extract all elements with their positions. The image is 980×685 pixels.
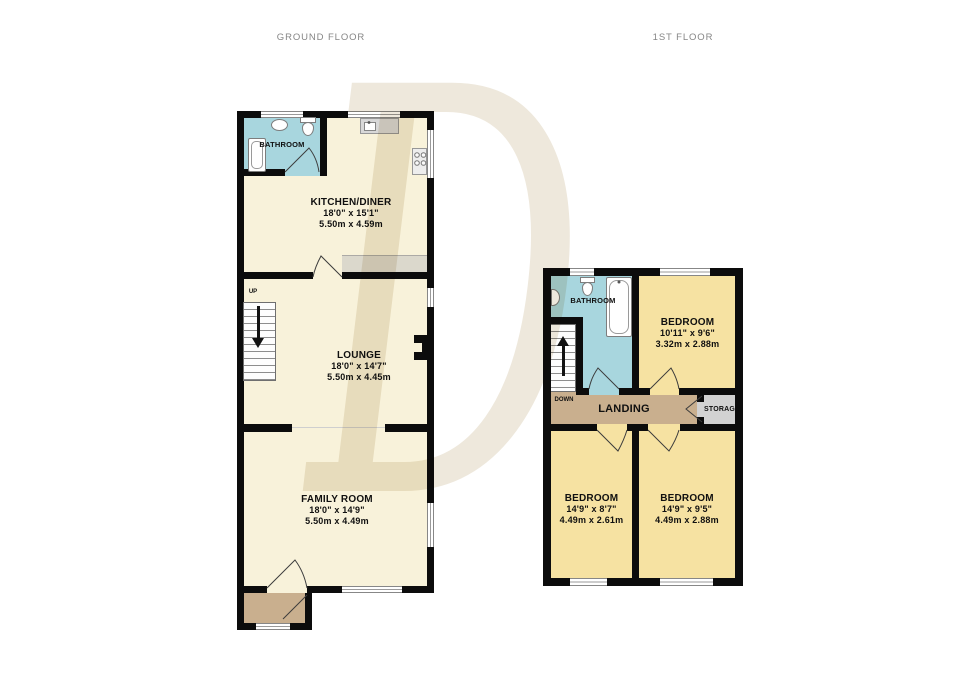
room-size-imperial: 10'11" x 9'6" (640, 328, 735, 339)
window (348, 111, 400, 118)
sink-icon (271, 119, 288, 131)
door-opening (285, 169, 320, 176)
room-name: LOUNGE (279, 350, 439, 361)
door-opening (648, 424, 680, 431)
landing-label: LANDING (551, 404, 697, 415)
room-size-metric: 5.50m x 4.49m (257, 516, 417, 527)
wall (697, 417, 704, 424)
room-size-imperial: 14'9" x 8'7" (551, 504, 632, 515)
open-plan-opening (292, 424, 385, 432)
kitchen-sink-icon (360, 118, 399, 134)
wall (244, 424, 292, 432)
wall (385, 424, 427, 432)
bathtub-icon (606, 277, 632, 337)
down-arrow-icon (562, 346, 565, 376)
wall (342, 272, 427, 279)
wall (543, 268, 551, 586)
wall (632, 276, 639, 388)
sink-basin (364, 122, 376, 131)
room-porch (244, 593, 305, 623)
wall (551, 424, 597, 431)
window (256, 623, 290, 630)
wall (735, 268, 743, 586)
window (570, 578, 607, 586)
door-opening (597, 424, 627, 431)
wall (679, 388, 735, 395)
room-size-metric: 5.50m x 4.59m (266, 219, 436, 230)
door-opening (313, 272, 342, 279)
wall (680, 424, 735, 431)
room-size-metric: 5.50m x 4.45m (279, 372, 439, 383)
storage-label: STORAGE (704, 404, 735, 415)
bathroom-label-ground: BATHROOM (244, 139, 320, 150)
wall (237, 586, 267, 593)
down-arrow-head-icon (557, 336, 569, 346)
wall (632, 431, 639, 578)
room-name: LANDING (551, 404, 697, 415)
window (427, 130, 434, 178)
stairs-up-label: UP (243, 289, 263, 295)
ground-floor-plan: UP BATHROOM KITCHEN/DINER 18'0" x 15'1" (237, 111, 434, 630)
first-floor-title: 1ST FLOOR (598, 32, 768, 43)
floorplan-canvas: GROUND FLOOR 1ST FLOOR (0, 0, 980, 685)
wall (697, 395, 704, 402)
room-size-metric: 4.49m x 2.88m (639, 515, 735, 526)
room-size-imperial: 18'0" x 14'7" (279, 361, 439, 372)
room-name: STORAGE (704, 404, 735, 415)
stairs-down-label: DOWN (551, 397, 577, 403)
room-size-metric: 4.49m x 2.61m (551, 515, 632, 526)
window (570, 268, 594, 276)
wall (307, 586, 342, 593)
room-name: BATHROOM (553, 295, 633, 306)
lounge-label: LOUNGE 18'0" x 14'7" 5.50m x 4.45m (279, 350, 439, 383)
bathroom-label-first: BATHROOM (553, 295, 633, 306)
room-name: BEDROOM (640, 317, 735, 328)
window (427, 288, 434, 307)
door-opening (267, 586, 307, 593)
room-name: BEDROOM (551, 493, 632, 504)
family-room-label: FAMILY ROOM 18'0" x 14'9" 5.50m x 4.49m (257, 494, 417, 527)
first-floor-plan: DOWN BATHROOM BEDROOM 10'11" x 9'6" 3.32… (543, 268, 743, 586)
wall (320, 118, 327, 176)
room-size-imperial: 18'0" x 15'1" (266, 208, 436, 219)
stove-icon (412, 148, 427, 175)
room-name: BATHROOM (244, 139, 320, 150)
room-size-metric: 3.32m x 2.88m (640, 339, 735, 350)
up-arrow-head-icon (252, 338, 264, 348)
window (261, 111, 303, 118)
window (660, 268, 710, 276)
room-name: KITCHEN/DINER (266, 197, 436, 208)
room-name: BEDROOM (639, 493, 735, 504)
kitchen-diner-label: KITCHEN/DINER 18'0" x 15'1" 5.50m x 4.59… (266, 197, 436, 230)
window (427, 503, 434, 547)
window (342, 586, 402, 593)
room-size-imperial: 14'9" x 9'5" (639, 504, 735, 515)
room-name: FAMILY ROOM (257, 494, 417, 505)
up-arrow-icon (257, 306, 260, 339)
bedroom-top-label: BEDROOM 10'11" x 9'6" 3.32m x 2.88m (640, 317, 735, 350)
open-plan-divider (292, 427, 385, 428)
door-opening (697, 402, 704, 417)
bedroom-right-label: BEDROOM 14'9" x 9'5" 4.49m x 2.88m (639, 493, 735, 526)
door-opening (650, 388, 679, 395)
room-size-imperial: 18'0" x 14'9" (257, 505, 417, 516)
door-opening (589, 388, 619, 395)
wall (244, 272, 313, 279)
bathtub-inner (609, 280, 629, 334)
wall (402, 586, 434, 593)
bedroom-left-label: BEDROOM 14'9" x 8'7" 4.49m x 2.61m (551, 493, 632, 526)
wall (619, 388, 650, 395)
window (660, 578, 713, 586)
ground-floor-title: GROUND FLOOR (236, 32, 406, 43)
kitchen-counter (342, 255, 427, 272)
wall (627, 424, 648, 431)
wall (576, 317, 583, 395)
